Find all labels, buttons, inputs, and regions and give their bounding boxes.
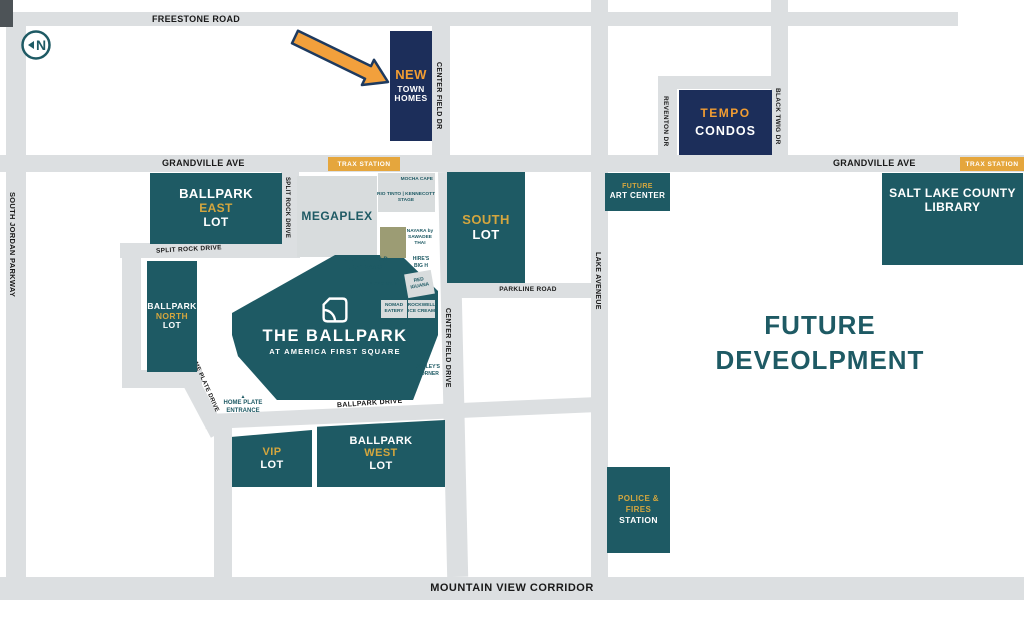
poi-nayara: NAYARA by SAWADEE THAI <box>405 229 435 248</box>
condos-label: CONDOS <box>695 124 756 138</box>
road-label-parkline: PARKLINE ROAD <box>458 286 598 293</box>
nomad-eatery-building: NOMAD EATERY <box>381 300 407 318</box>
cf-entrance-line2: ENTRANCE <box>352 265 385 271</box>
ballpark-east-lot: BALLPARK EAST LOT <box>150 173 282 244</box>
north-indicator-icon: N <box>20 29 52 61</box>
police-line2: FIRES <box>626 505 652 514</box>
ballpark-subtitle: AT AMERICA FIRST SQUARE <box>269 348 401 357</box>
road-label-grandville-east: GRANDVILLE AVE <box>833 158 916 168</box>
road-label-lake-avenue: LAKE AVENEUE <box>594 252 601 310</box>
tempo-condos-building: TEMPO CONDOS <box>679 90 772 155</box>
new-town-homes-building: NEW TOWN HOMES <box>390 31 432 141</box>
megaplex-label: MEGAPLEX <box>301 210 372 224</box>
police-line3: STATION <box>619 516 658 526</box>
center-field-entrance-label: CENTER FIELD ◣ ENTRANCE <box>342 257 390 273</box>
poi-playground: PLAYGROUND <box>368 282 402 288</box>
rockwell-building: ROCKWELL ICE CREAM <box>408 300 435 318</box>
south-lot-lot: LOT <box>472 228 499 243</box>
hires-line2: BIG H <box>406 263 436 270</box>
poi-nomad-eatery: NOMAD EATERY <box>385 303 404 315</box>
cf-entrance-line2-wrap: ◣ ENTRANCE <box>342 265 390 273</box>
poi-rio-tinto-stage: RIO TINTO | KENNECOTT STAGE <box>376 192 436 204</box>
future-development-area: FUTURE DEVEOLPMENT <box>680 308 960 378</box>
rio-tinto-line2: STAGE <box>376 198 436 204</box>
police-fire-station: POLICE & FIRES STATION <box>607 467 670 553</box>
poi-red-iguana: RED IGUANA <box>409 276 430 292</box>
home-plate-entrance-label: ▲ HOME PLATE ENTRANCE <box>220 395 266 416</box>
north-lot-lot: LOT <box>163 321 181 331</box>
road-north-lot-vertical <box>122 243 141 388</box>
entrance-triangle-icon: ◣ <box>347 265 351 271</box>
ballpark-north-lot: BALLPARK NORTH LOT <box>147 261 197 372</box>
road-label-south-jordan: SOUTH JORDAN PARKWAY <box>8 192 17 297</box>
east-lot-lot: LOT <box>203 216 228 230</box>
road-label-center-field-dr-top: CENTER FIELD DR <box>435 62 442 130</box>
west-lot-lot: LOT <box>369 460 392 473</box>
megaplex-building: MEGAPLEX <box>297 176 377 257</box>
ballpark-west-lot: BALLPARK WEST LOT <box>317 420 445 487</box>
hp-entrance-line2: ENTRANCE <box>220 408 266 416</box>
future-development-line2: DEVEOLPMENT <box>680 343 960 378</box>
tempo-label: TEMPO <box>700 107 750 121</box>
road-label-freestone: FREESTONE ROAD <box>152 14 240 24</box>
east-lot-ballpark: BALLPARK <box>179 187 253 202</box>
future-development-line1: FUTURE <box>680 308 960 343</box>
jolleys-line2: CORNER <box>413 371 443 378</box>
nayara-line3: THAI <box>405 241 435 247</box>
west-lot-west: WEST <box>364 447 397 460</box>
west-lot-ballpark: BALLPARK <box>350 435 413 448</box>
vip-lot-lot: LOT <box>260 459 283 472</box>
map-edge-artifact <box>0 0 13 27</box>
rockwell-line2: ICE CREAM <box>408 309 436 315</box>
poi-mocha-cafe: MOCHA CAFE <box>378 177 433 183</box>
art-center-label: ART CENTER <box>610 191 666 200</box>
library-line2: LIBRARY <box>925 201 981 215</box>
ballpark-logo-icon <box>322 297 348 323</box>
library-line1: SALT LAKE COUNTY <box>889 187 1016 201</box>
vip-lot-vip: VIP <box>263 446 282 459</box>
north-letter: N <box>36 37 46 53</box>
road-label-black-twig: BLACK TWIG DR <box>774 88 781 145</box>
future-art-center: FUTURE ART CENTER <box>605 173 670 211</box>
road-label-mountain-view: MOUNTAIN VIEW CORRIDOR <box>0 582 1024 594</box>
khaki-building <box>380 227 406 258</box>
red-iguana-building: RED IGUANA <box>404 270 435 298</box>
cf-entrance-line1: CENTER FIELD <box>342 257 390 265</box>
hp-entrance-line1: HOME PLATE <box>220 400 266 408</box>
south-lot: SOUTH LOT <box>447 172 525 283</box>
road-label-reventon: REVENTON DR <box>662 96 669 147</box>
south-lot-south: SOUTH <box>462 213 510 228</box>
road-tempo-connector <box>658 76 788 89</box>
trax-station-badge-east: TRAX STATION <box>960 157 1024 171</box>
poi-rockwell-ice-cream: ROCKWELL ICE CREAM <box>408 303 436 315</box>
jolleys-line1: JOLLEY'S <box>413 364 443 371</box>
road-home-plate-vertical <box>214 424 232 577</box>
poi-hires-big-h: HIRE'S BIG H <box>406 256 436 269</box>
trax-station-badge-west: TRAX STATION <box>328 157 400 171</box>
road-label-center-field-drive: CENTER FIELD DRIVE <box>444 308 451 388</box>
nomad-line2: EATERY <box>385 309 404 315</box>
road-label-grandville-west: GRANDVILLE AVE <box>162 158 245 168</box>
road-label-split-rock-vertical: SPLIT ROCK DRIVE <box>284 177 290 238</box>
road-freestone <box>0 12 958 26</box>
vip-lot: VIP LOT <box>232 430 312 487</box>
police-line1: POLICE & <box>618 494 659 503</box>
new-town-homes-label-new: NEW <box>395 68 427 83</box>
salt-lake-county-library: SALT LAKE COUNTY LIBRARY <box>882 173 1023 265</box>
art-center-future: FUTURE <box>622 183 653 191</box>
poi-jolleys-corner: JOLLEY'S CORNER <box>413 364 443 377</box>
east-lot-east: EAST <box>199 202 233 216</box>
location-arrow-icon <box>280 20 395 95</box>
ballpark-area-map: FREESTONE ROAD GRANDVILLE AVE GRANDVILLE… <box>0 0 1024 621</box>
ballpark-title: THE BALLPARK <box>262 327 407 346</box>
new-town-homes-label-homes: HOMES <box>394 94 427 104</box>
